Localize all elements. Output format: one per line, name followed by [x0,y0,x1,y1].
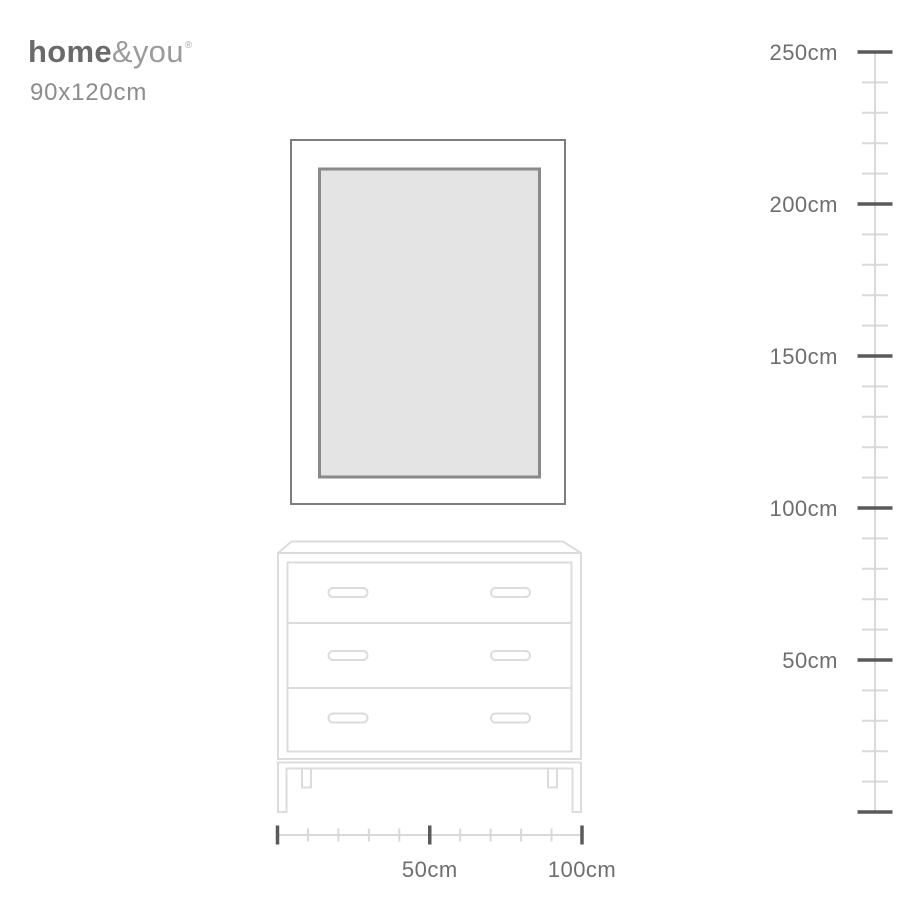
mirror-glass [320,169,540,477]
mirror-frame [291,140,565,504]
dresser-top-surface [278,542,581,554]
vertical-ruler: 250cm200cm150cm100cm50cm [769,40,892,812]
dimension-diagram: 250cm200cm150cm100cm50cm 50cm100cm [0,0,920,920]
dresser-body [278,553,581,759]
dresser-back-leg-right [548,769,557,788]
dresser-back-leg-left [302,769,311,788]
v-ruler-label: 250cm [769,40,838,65]
horizontal-ruler: 50cm100cm [278,826,617,883]
dresser-base-frame [278,763,581,813]
v-ruler-label: 200cm [769,192,838,217]
h-ruler-label: 50cm [402,857,458,882]
v-ruler-label: 150cm [769,344,838,369]
v-ruler-label: 100cm [769,496,838,521]
dresser [278,542,581,813]
h-ruler-label: 100cm [548,857,617,882]
v-ruler-label: 50cm [782,648,838,673]
